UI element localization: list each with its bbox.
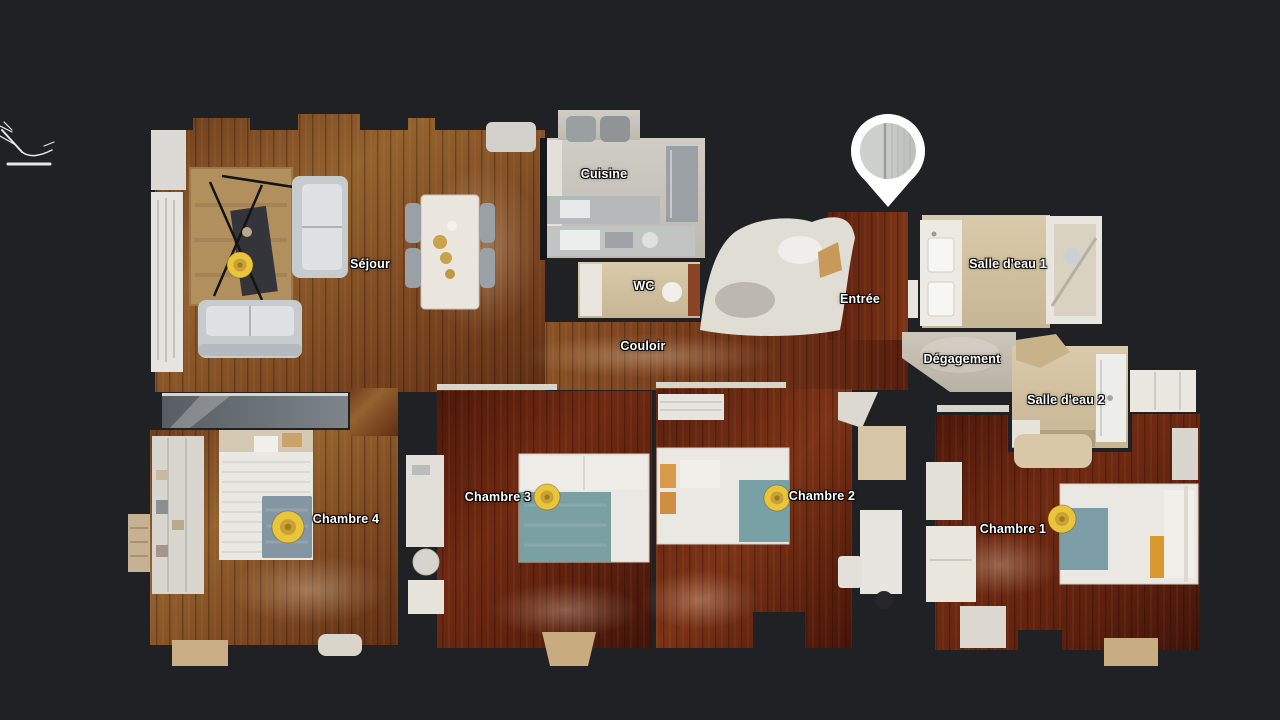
chair [413,549,439,575]
floorplan-viewer: SéjourCuisineWCCouloirEntréeSalle d'eau … [0,0,1280,720]
bed [1060,484,1198,584]
shelf [658,394,724,420]
sweep-marker[interactable] [764,485,790,511]
bench [926,462,962,520]
lounge-chair [1014,434,1092,468]
mesh-artifact-blob [700,217,855,336]
bench [926,526,976,602]
closet [1130,370,1196,412]
curtain-top [486,122,536,152]
position-pin-marker[interactable] [851,114,925,207]
bed [519,454,649,562]
curtain [1172,428,1198,480]
bed [219,430,313,560]
desk [860,510,902,594]
floorplan-canvas[interactable] [0,0,1280,720]
desk [406,455,444,614]
entree-door [908,280,918,318]
chair [838,556,862,588]
sweep-marker[interactable] [227,252,253,278]
cabinet [858,426,906,480]
mesh-artifact-lines [0,122,54,164]
wardrobe [152,436,204,594]
window-curtain [151,130,186,190]
stool [875,591,893,609]
sofa [292,176,348,278]
blanket [519,492,611,562]
sofa [198,300,302,358]
sweep-marker[interactable] [272,511,304,543]
mirror-wardrobe [162,396,348,428]
shower [1046,216,1102,324]
sweep-marker[interactable] [534,484,560,510]
toilet [662,282,682,302]
sweep-marker[interactable] [1048,505,1076,533]
